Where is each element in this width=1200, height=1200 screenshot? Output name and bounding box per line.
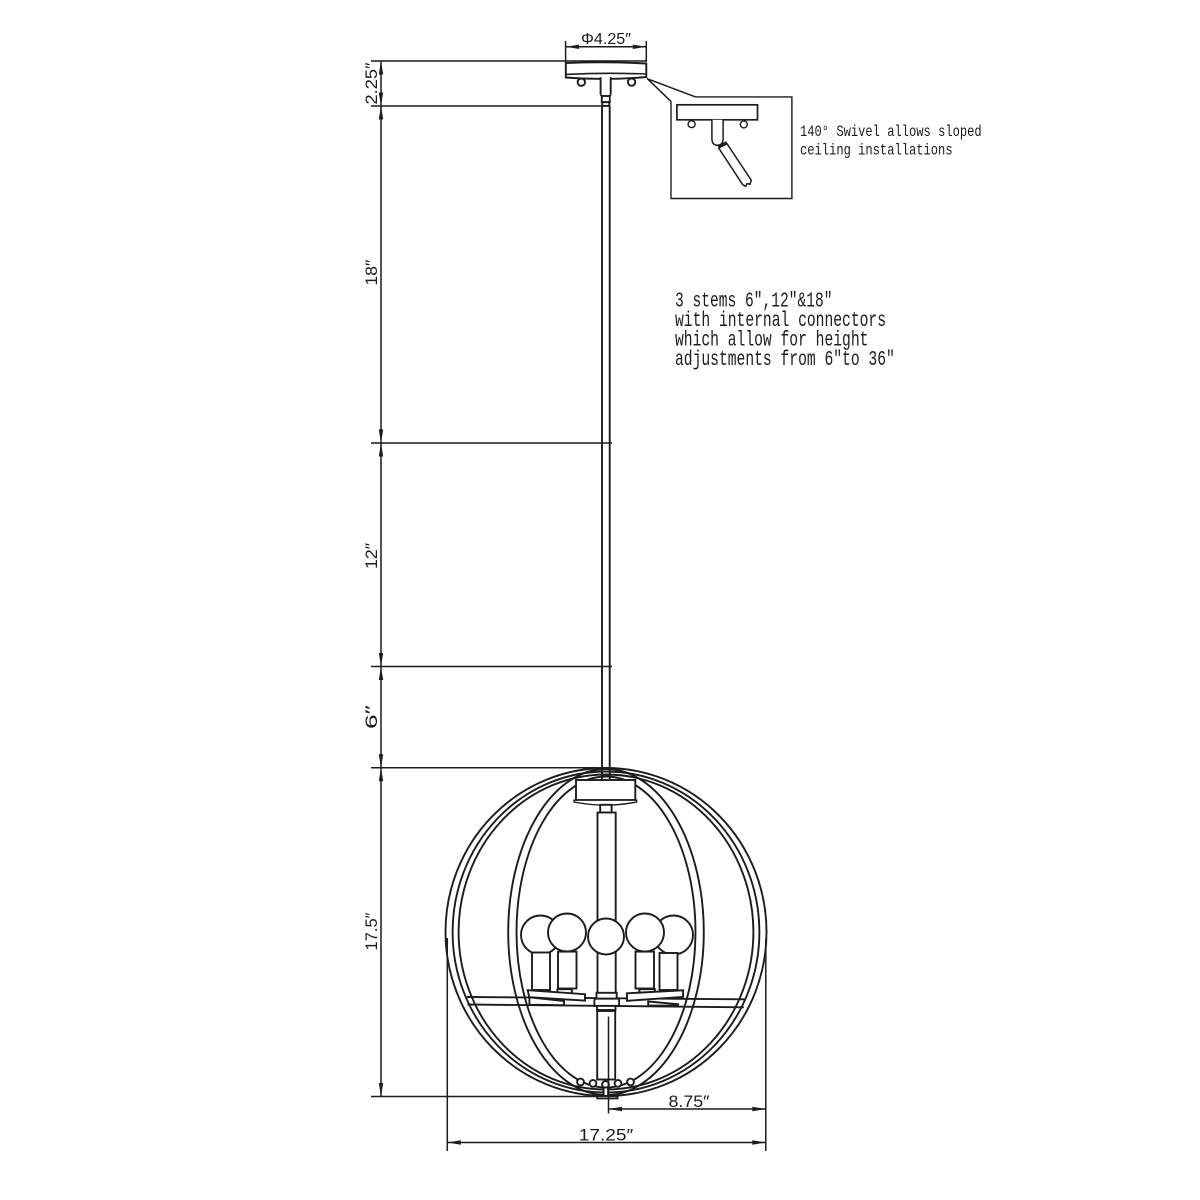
- svg-text:17.25″: 17.25″: [579, 1127, 634, 1145]
- svg-text:17.5″: 17.5″: [362, 913, 381, 951]
- svg-text:140° Swivel allows sloped: 140° Swivel allows sloped: [800, 123, 982, 141]
- svg-text:adjustments from 6″to 36″: adjustments from 6″to 36″: [675, 349, 895, 372]
- svg-text:ceiling installations: ceiling installations: [800, 141, 953, 159]
- svg-text:2.25″: 2.25″: [362, 63, 381, 105]
- svg-text:6″: 6″: [362, 705, 381, 729]
- svg-text:Φ4.25″: Φ4.25″: [581, 31, 631, 48]
- svg-text:8.75″: 8.75″: [669, 1093, 710, 1111]
- svg-text:18″: 18″: [362, 260, 381, 286]
- svg-text:12″: 12″: [362, 543, 381, 569]
